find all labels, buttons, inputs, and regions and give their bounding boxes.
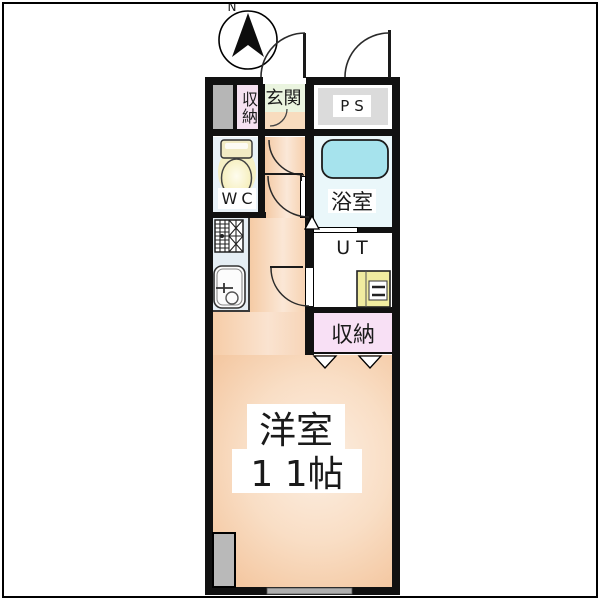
pillar [213, 533, 235, 587]
corridor-door-arc-lower [268, 176, 309, 217]
bath-door-marker [305, 216, 319, 229]
entrance-label: 玄関 [262, 84, 305, 110]
entrance-door-leaf [303, 33, 306, 78]
bathtub-icon [322, 140, 388, 178]
bathroom-label: 浴室 [328, 189, 376, 213]
water-heater-icon [357, 271, 390, 307]
main-room-name: 洋室 [247, 404, 345, 449]
kitchen-sink-icon [214, 266, 245, 308]
compass-north-label: N [222, 0, 242, 14]
wc-label: WC [218, 188, 256, 209]
ps-label: PS [333, 95, 371, 117]
corridor-door-arc-upper [269, 140, 304, 175]
closet-label: 収納 [328, 319, 378, 347]
utility-label: UT [327, 236, 377, 260]
ps-door-leaf [388, 30, 391, 78]
utility-door-arc [271, 268, 309, 306]
floor-plan: N 収納 玄関 PS WC 浴室 UT 収納 洋室 1 1帖 [0, 0, 600, 600]
main-room-size: 1 1帖 [232, 449, 362, 493]
storage-top-label: 収納 [237, 86, 259, 130]
gas-stove-icon [215, 220, 243, 252]
window [267, 588, 352, 594]
entrance-step-arc [270, 109, 287, 126]
ps-door-arc [345, 33, 389, 77]
folding-closet-door [314, 356, 381, 368]
toilet-tank-lid [225, 143, 248, 149]
